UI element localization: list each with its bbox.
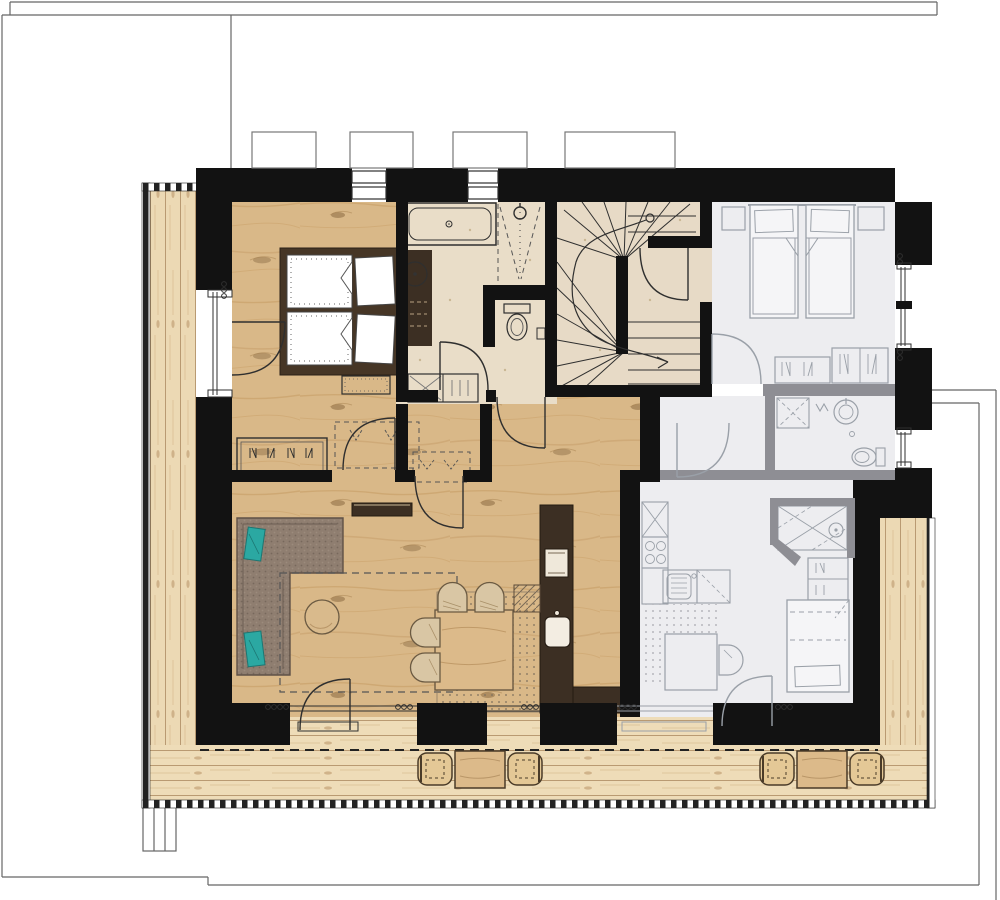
exterior-wall-bottom [417, 703, 487, 745]
exterior-wall-left [196, 397, 232, 745]
sofa-cushion-teal [244, 631, 265, 667]
dining-chair [411, 653, 441, 682]
floor-plan-page [0, 0, 1000, 900]
neighbor-rug [642, 634, 665, 684]
outdoor-table [797, 751, 847, 788]
dining-table [435, 610, 513, 690]
exterior-wall-right [895, 202, 932, 265]
exterior-wall-bottom [540, 703, 617, 745]
wall-hall-stub [480, 404, 492, 482]
dishwasher [514, 585, 540, 612]
wall-bathroom-stairs [545, 202, 557, 397]
grey-wall-bedroom-bottom [763, 384, 895, 396]
wall-stairs-right [700, 302, 712, 397]
mattress [287, 312, 352, 365]
wall-unit-separation [620, 480, 640, 717]
grey-wall-shower [847, 498, 855, 558]
wall-living-north [395, 470, 415, 482]
pillow [355, 314, 395, 364]
neighbor-pillow [811, 209, 850, 232]
double-bed [280, 248, 402, 375]
floor-plan [0, 0, 1000, 900]
window-top-2 [468, 168, 498, 202]
exterior-wall-right-lower [853, 518, 880, 745]
tv-sideboard [352, 503, 412, 516]
grey-wall-bath [765, 396, 775, 480]
pillow [355, 256, 395, 306]
dining-chair [438, 583, 467, 613]
coffee-table [305, 600, 339, 634]
window-wells [252, 132, 675, 168]
window-right-2 [895, 428, 932, 468]
stair-floor [557, 202, 712, 397]
outdoor-table [455, 751, 505, 788]
outdoor-chair [760, 753, 794, 785]
kitchen-sink [545, 617, 570, 647]
terrace-set-1 [418, 751, 542, 788]
french-door-left [196, 290, 232, 397]
wall-stair-stub [648, 236, 712, 248]
kitchen-tall-units [540, 505, 573, 713]
neighbor-pillow [795, 665, 841, 687]
terrace-set-2 [760, 751, 884, 788]
dining-chair [411, 618, 441, 647]
deck-left [150, 188, 196, 802]
window-right-1 [895, 263, 932, 350]
wall-bathroom-bottom [396, 390, 438, 402]
neighbor-rug [642, 604, 717, 634]
wall-bedroom-bathroom [396, 202, 408, 390]
dining-chair [475, 583, 504, 613]
outdoor-chair [418, 753, 452, 785]
wall-bathroom-bottom [486, 390, 496, 402]
exterior-wall-top [196, 168, 895, 202]
grey-wall-shower [770, 498, 778, 545]
wall-stairs-bottom [557, 385, 712, 397]
exterior-wall-corner [853, 475, 932, 518]
faucet-icon [555, 611, 560, 616]
neighbor-pillow [755, 209, 794, 232]
outdoor-chair [508, 753, 542, 785]
grey-wall-shower [770, 498, 855, 506]
neighbor-single-bed [787, 600, 849, 692]
window-top-1 [352, 168, 386, 202]
wall-living-north [232, 470, 332, 482]
mattress [287, 255, 352, 308]
outdoor-chair [850, 753, 884, 785]
wall-unit-separation [640, 397, 660, 480]
stair-spine-wall [616, 256, 628, 354]
wall-toilet-nook [483, 285, 495, 347]
exterior-wall-left [196, 202, 232, 290]
